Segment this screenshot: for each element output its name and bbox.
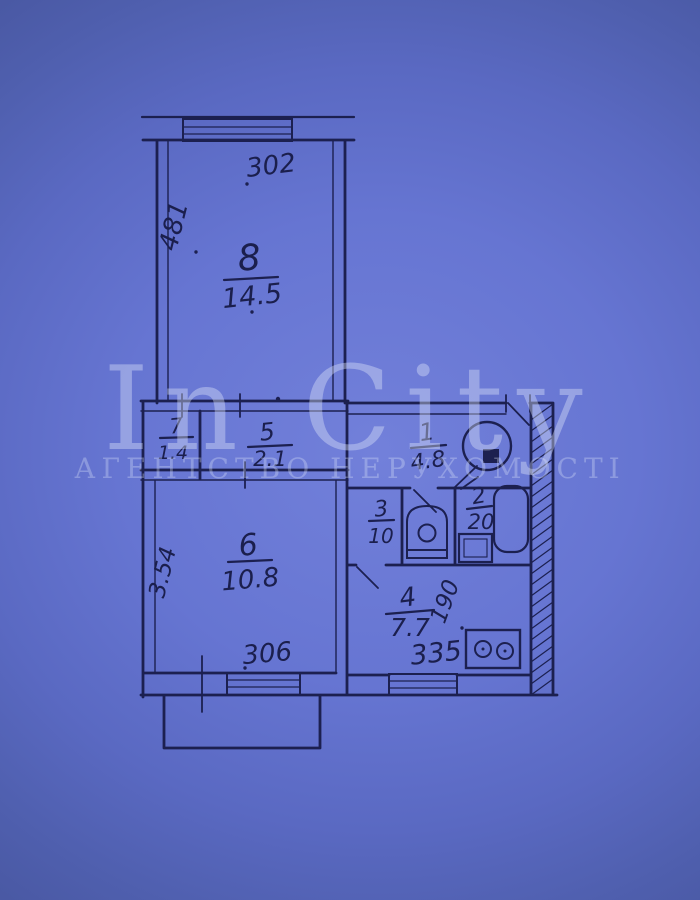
dim-kitchen-height: 190 xyxy=(426,577,465,627)
sink-inner-icon xyxy=(464,539,487,557)
room1-area: 4.8 xyxy=(409,447,447,477)
ink-dot xyxy=(460,626,463,629)
room4-area: 7.7 xyxy=(390,613,430,642)
room8-area: 14.5 xyxy=(221,278,284,315)
room6-number: 6 xyxy=(237,527,259,564)
room6-area: 10.8 xyxy=(220,563,280,598)
washbasin-drain-icon xyxy=(483,449,499,463)
room3-number: 3 xyxy=(373,496,390,522)
room3-area: 10 xyxy=(368,524,393,548)
ink-dot xyxy=(194,250,197,253)
room1-number: 1 xyxy=(417,417,436,447)
room4-number: 4 xyxy=(398,582,419,614)
stove-burner-left-dot xyxy=(482,648,485,651)
door-marks xyxy=(182,394,530,712)
room8-number: 8 xyxy=(236,237,262,279)
dim-height-left-upper: 481 xyxy=(154,198,195,253)
room-number-underlines xyxy=(160,277,492,614)
floor-plan-drawing: 8 14.5 302 481 7 1.4 5 2.1 1 4.8 3 10 2 … xyxy=(0,0,700,900)
scanned-floor-plan-page: 8 14.5 302 481 7 1.4 5 2.1 1 4.8 3 10 2 … xyxy=(0,0,700,900)
room5-area: 2.1 xyxy=(253,447,286,471)
bathtub-icon xyxy=(494,486,528,552)
room2-area: 20 xyxy=(468,510,495,534)
room7-area: 1.4 xyxy=(158,442,188,464)
walls-thick xyxy=(141,140,557,748)
stove-burner-right-dot xyxy=(504,650,507,653)
dim-width-top: 302 xyxy=(245,148,298,184)
dim-height-left-lower: 3.54 xyxy=(144,544,182,600)
toilet-icon xyxy=(407,506,447,558)
ink-dot xyxy=(276,397,280,401)
dim-width-bottom-left: 306 xyxy=(241,637,293,671)
walls-group xyxy=(141,117,557,748)
fraction-lines xyxy=(160,277,492,614)
labels-group: 8 14.5 302 481 7 1.4 5 2.1 1 4.8 3 10 2 … xyxy=(144,148,494,672)
dim-kitchen-width: 335 xyxy=(409,635,464,671)
room5-number: 5 xyxy=(258,417,276,446)
vent-shaft-hatch xyxy=(531,404,553,695)
toilet-bowl-icon xyxy=(419,525,436,542)
